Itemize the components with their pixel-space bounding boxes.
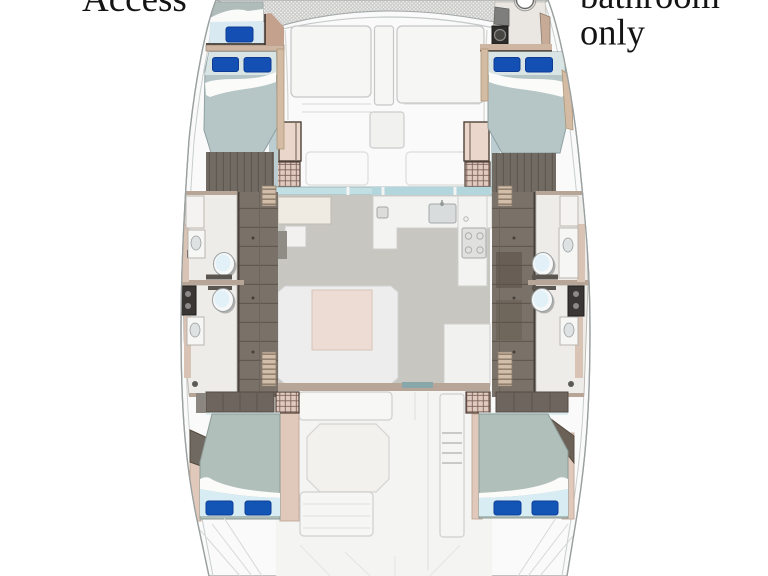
svg-text:Access: Access <box>82 0 187 20</box>
svg-text:only: only <box>580 12 646 53</box>
